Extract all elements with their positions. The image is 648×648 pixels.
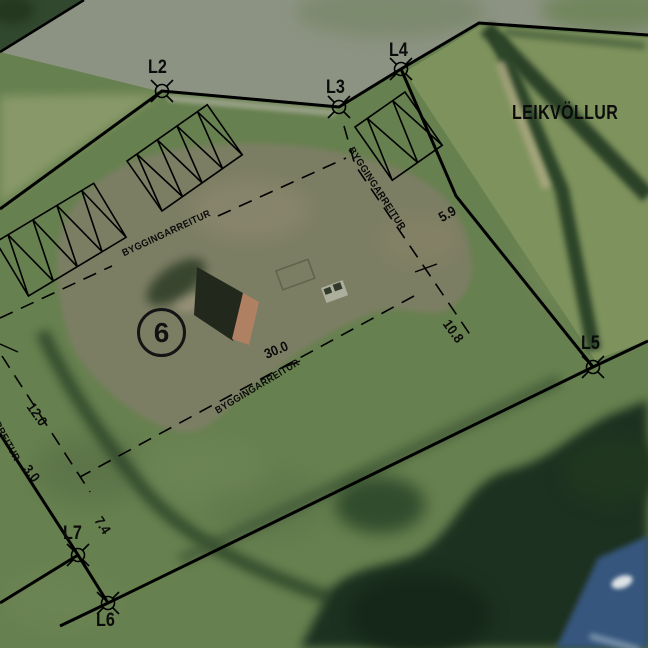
road-edge-line xyxy=(0,0,84,52)
lot-number-badge: 6 xyxy=(137,308,186,357)
parking-hatch-1 xyxy=(0,183,126,296)
site-plan-map: L2 L3 L4 L5 L6 L7 LEIKVÖLLUR 6 BYGGINGAR… xyxy=(0,0,648,648)
playground-area-label: LEIKVÖLLUR xyxy=(512,103,618,123)
building-envelope-dashed xyxy=(0,126,471,492)
survey-linework xyxy=(0,0,648,648)
survey-point-label-l2: L2 xyxy=(148,58,167,77)
dimension-ticks xyxy=(0,264,437,369)
boundary-south xyxy=(60,341,648,626)
parking-hatch-2 xyxy=(127,105,242,211)
lot-number: 6 xyxy=(154,317,170,349)
boundary-branch-southwest xyxy=(0,555,78,603)
survey-point-label-l7: L7 xyxy=(63,524,82,543)
survey-point-label-l6: L6 xyxy=(96,611,115,630)
survey-point-label-l4: L4 xyxy=(389,41,408,60)
survey-point-label-l5: L5 xyxy=(581,334,600,353)
survey-point-label-l3: L3 xyxy=(326,78,345,97)
